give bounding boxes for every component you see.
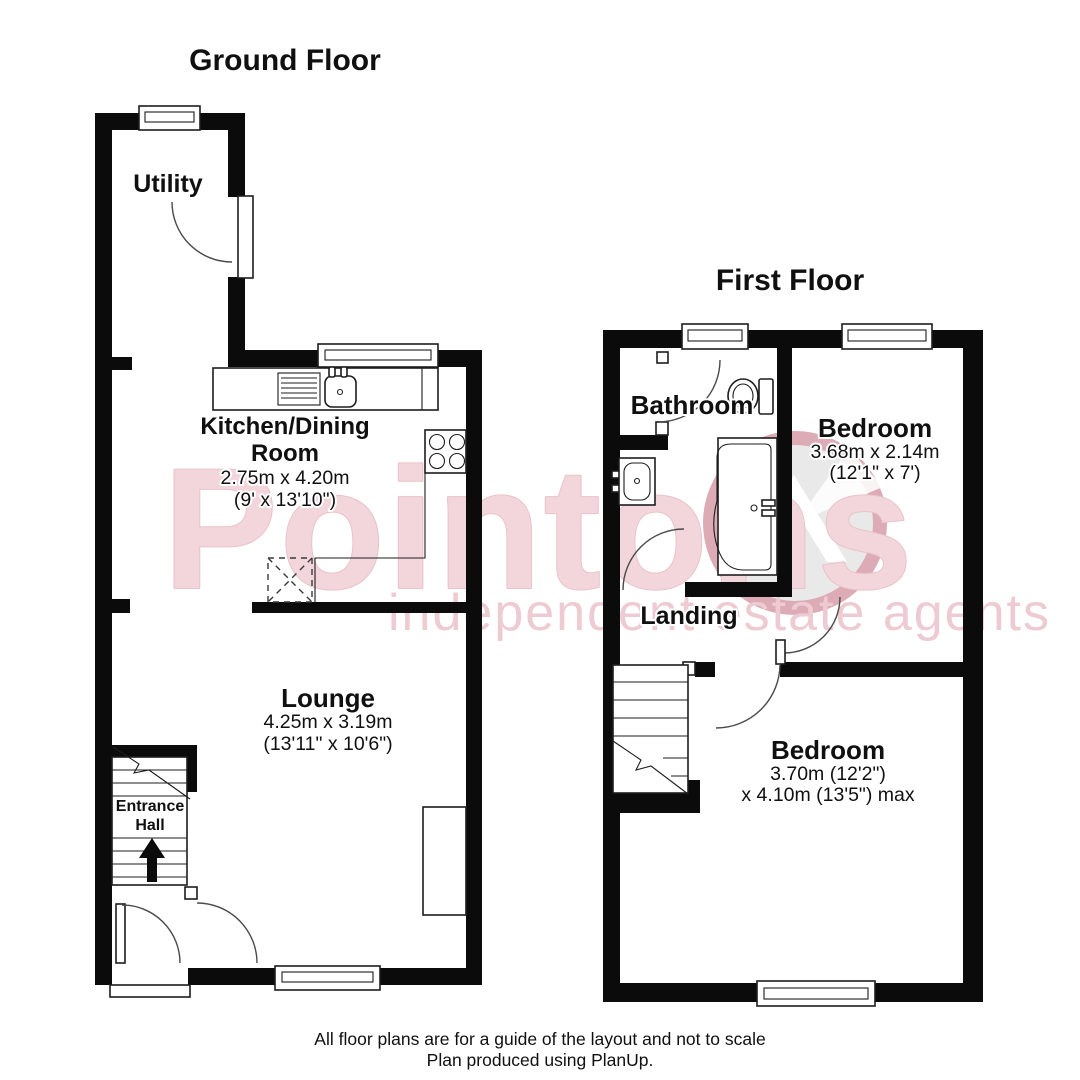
bath-icon <box>714 438 777 575</box>
footer-disclaimer: All floor plans are for a guide of the l… <box>314 1029 765 1049</box>
room-dims-bedroom2-line1: 3.70m (12'2") <box>770 763 886 785</box>
front-door <box>110 904 190 997</box>
room-label-bathroom: Bathroom <box>631 390 754 420</box>
ground-floor-title: Ground Floor <box>189 44 381 77</box>
footer: All floor plans are for a guide of the l… <box>314 1029 765 1070</box>
bathroom-window <box>682 324 748 349</box>
lounge-door <box>185 887 257 963</box>
room-label-entrance-line1: Entrance <box>116 798 185 815</box>
utility-door <box>172 196 253 278</box>
footer-credit: Plan produced using PlanUp. <box>427 1050 654 1070</box>
lounge-window <box>275 966 380 990</box>
room-dims-lounge-imperial: (13'11" x 10'6") <box>263 733 392 755</box>
lounge-chimney-unit <box>423 807 466 915</box>
kitchen-window <box>318 344 438 367</box>
room-label-bedroom1: Bedroom <box>818 413 932 443</box>
room-label-kitchen-line2: Room <box>251 440 319 467</box>
room-dims-lounge-metric: 4.25m x 3.19m <box>264 711 393 733</box>
room-dims-bedroom1-metric: 3.68m x 2.14m <box>811 441 940 463</box>
room-label-bedroom2: Bedroom <box>771 735 885 765</box>
room-label-utility: Utility <box>133 170 203 198</box>
room-label-lounge: Lounge <box>281 683 375 713</box>
room-dims-kitchen-imperial: (9' x 13'10") <box>234 489 336 511</box>
room-label-entrance-line2: Hall <box>135 817 164 834</box>
floorplan-image: Pointons independent estate agents <box>0 0 1080 1080</box>
room-dims-bedroom1-imperial: (12'1" x 7') <box>829 462 920 484</box>
room-label-landing: Landing <box>640 602 737 630</box>
bedroom2-window <box>757 981 875 1006</box>
room-dims-bedroom2-line2: x 4.10m (13'5") max <box>741 784 914 806</box>
basin-icon <box>612 458 655 505</box>
bedroom2-door <box>683 640 785 728</box>
room-label-kitchen-line1: Kitchen/Dining <box>200 413 369 440</box>
first-floor-stairs <box>613 665 688 794</box>
ground-floor-stairs <box>112 747 190 885</box>
kitchen-counter <box>213 367 438 410</box>
hob-icon <box>425 430 466 473</box>
room-dims-kitchen-metric: 2.75m x 4.20m <box>221 467 350 489</box>
utility-window <box>139 106 200 130</box>
first-floor-title: First Floor <box>716 264 865 297</box>
floorplan-page: Pointons independent estate agents <box>0 0 1080 1080</box>
bedroom1-window <box>842 324 932 349</box>
